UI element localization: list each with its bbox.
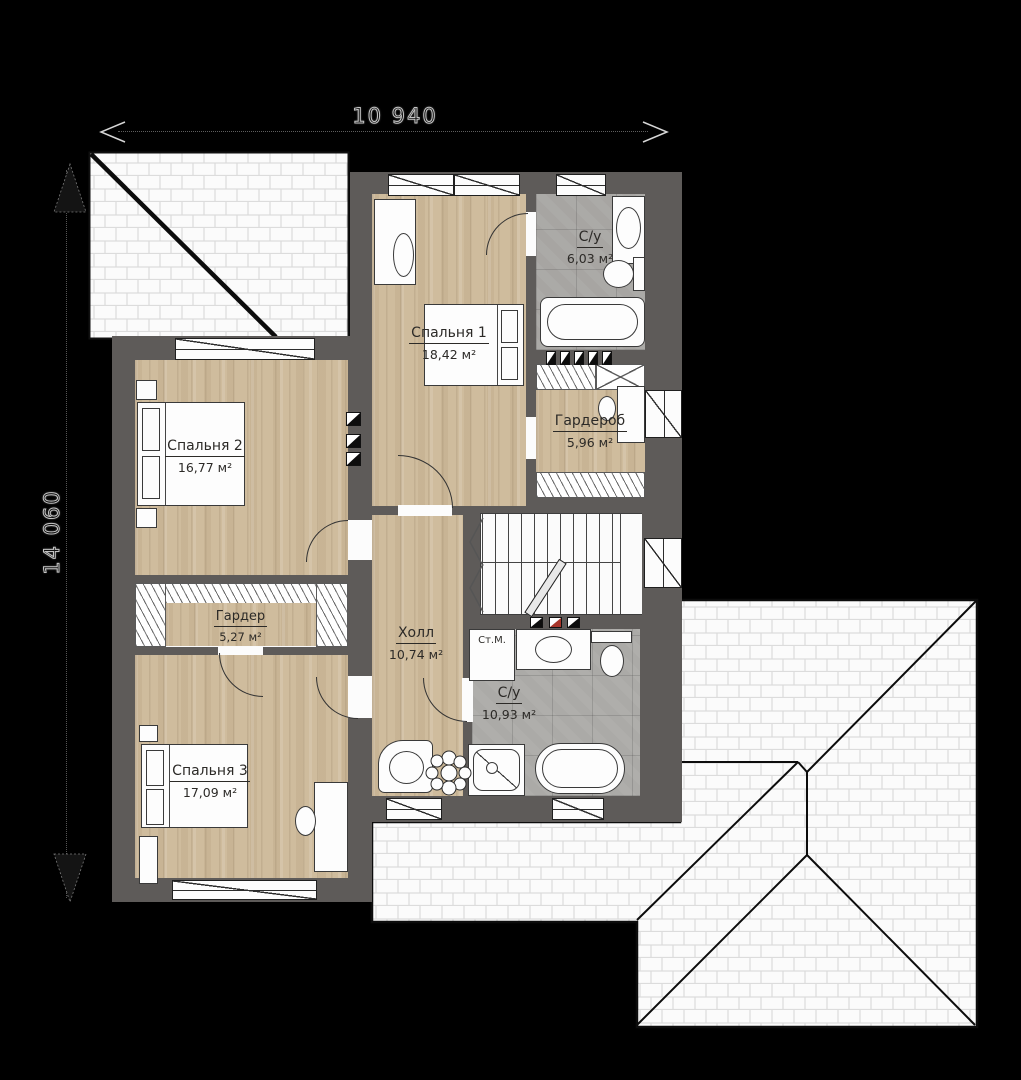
wardrobe-rack	[135, 583, 166, 647]
vent-shaft	[560, 351, 570, 365]
vent-shaft	[530, 617, 543, 628]
dimension-arrow-right	[640, 119, 672, 145]
desk	[314, 782, 348, 872]
nightstand	[136, 380, 157, 400]
dimension-left: 14 060	[40, 472, 64, 592]
chair	[393, 233, 414, 277]
stair-landing	[620, 514, 642, 614]
room-name: С/у	[496, 685, 523, 704]
room-area: 10,74 м²	[377, 647, 455, 662]
stair-treads	[482, 514, 620, 614]
roof-top-left	[88, 150, 350, 340]
bathtub-inner	[542, 749, 618, 788]
room-area: 6,03 м²	[545, 251, 635, 266]
window	[552, 798, 604, 820]
room-area: 5,96 м²	[540, 435, 640, 450]
stair-direction-marks	[466, 514, 486, 616]
wardrobe-rack	[316, 583, 348, 647]
section-marker-top	[50, 160, 90, 216]
sink	[535, 636, 572, 663]
vent-shaft-red	[549, 617, 562, 628]
room-name: Гардероб	[553, 413, 627, 432]
room-name: Спальня 1	[409, 325, 489, 344]
vent-shaft	[567, 617, 580, 628]
label-bedroom2: Спальня 2 16,77 м²	[150, 435, 260, 475]
dimension-line-top	[118, 131, 648, 132]
vent-shaft	[346, 452, 361, 466]
room-name: Холл	[396, 625, 436, 644]
window	[175, 338, 315, 360]
nightstand	[139, 725, 158, 742]
door-opening	[526, 417, 536, 459]
nightstand	[136, 508, 157, 528]
toilet	[600, 645, 624, 677]
room-name: С/у	[577, 229, 604, 248]
dresser	[139, 836, 158, 884]
label-bath1: С/у 6,03 м²	[545, 226, 635, 266]
stair-mid-line	[481, 562, 621, 563]
label-bath2: С/у 10,93 м²	[468, 682, 550, 722]
room-name: Спальня 3	[170, 763, 250, 782]
armchair-seat	[389, 751, 424, 784]
vent-shaft	[574, 351, 584, 365]
washing-machine: Ст.М.	[469, 629, 515, 681]
section-marker-bottom	[50, 850, 90, 906]
wardrobe-rack	[536, 472, 645, 498]
dimension-top: 10 940	[325, 104, 465, 128]
label-bedroom3: Спальня 3 17,09 м²	[155, 760, 265, 800]
shower-drain	[486, 762, 498, 774]
dimension-arrow-left	[96, 119, 128, 145]
room-area: 17,09 м²	[155, 785, 265, 800]
bathtub-inner	[547, 304, 638, 340]
washing-machine-label: Ст.М.	[470, 635, 514, 646]
floor-plan: 10 940 14 060	[0, 0, 1021, 1080]
room-area: 10,93 м²	[468, 707, 550, 722]
vent-shaft	[346, 412, 361, 426]
window	[172, 880, 317, 900]
window	[386, 798, 442, 820]
toilet-tank	[591, 631, 632, 643]
room-name: Гардер	[214, 608, 267, 627]
window	[556, 174, 606, 196]
window	[388, 174, 454, 196]
window	[645, 390, 682, 438]
vent-shaft	[346, 434, 361, 448]
label-hall: Холл 10,74 м²	[377, 622, 455, 662]
plant	[424, 748, 474, 798]
vent-shaft	[602, 351, 612, 365]
window	[644, 538, 682, 588]
wardrobe-rack	[536, 364, 596, 390]
dimension-line-left	[66, 170, 67, 898]
label-bedroom1: Спальня 1 18,42 м²	[374, 322, 524, 362]
room-area: 16,77 м²	[150, 460, 260, 475]
door-opening	[348, 520, 372, 560]
vent-shaft	[546, 351, 556, 365]
chair	[295, 806, 316, 836]
room-area: 18,42 м²	[374, 347, 524, 362]
vent-shaft	[588, 351, 598, 365]
room-name: Спальня 2	[165, 438, 245, 457]
wardrobe-rack	[165, 583, 317, 604]
label-wardrobe2: Гардер 5,27 м²	[193, 605, 288, 644]
window	[454, 174, 520, 196]
room-area: 5,27 м²	[193, 630, 288, 644]
label-wardrobe1: Гардероб 5,96 м²	[540, 410, 640, 450]
